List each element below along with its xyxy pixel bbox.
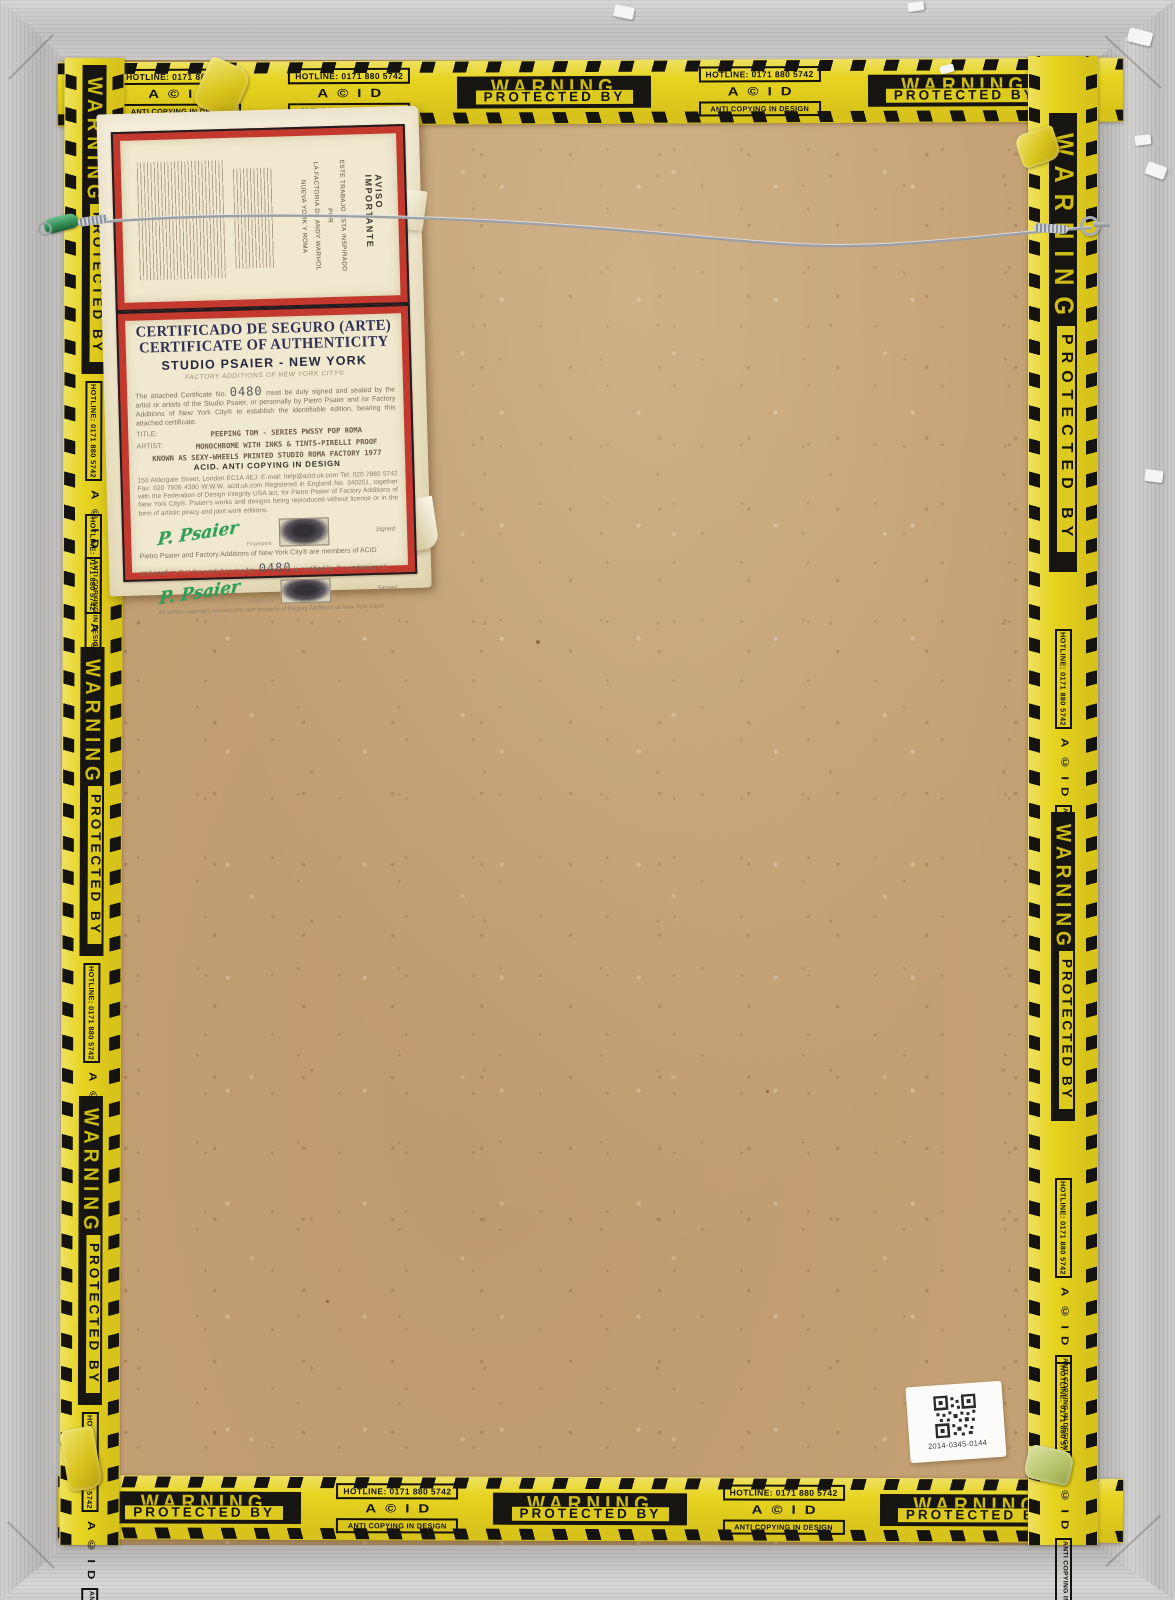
- fingerprint-stamp: P. Psaier: [281, 578, 332, 603]
- tape-anti-copying-label: ANTI COPYING IN DESIGN: [723, 1519, 845, 1534]
- tape-hotline-label: HOTLINE: 0171 880 5742: [699, 66, 821, 83]
- warning-banner: WARNING PROTECTED BY: [457, 75, 651, 109]
- fingerprint-stamp: P. Psaier: [279, 517, 330, 546]
- acid-logo: A©ID: [336, 1503, 458, 1515]
- security-tape-bottom: WARNING PROTECTED BY HOTLINE: 0171 880 5…: [58, 1475, 1123, 1543]
- panel-paper: AVISO IMPORTANTE ESTE TRABAJO ESTA INSPI…: [120, 133, 400, 303]
- tape-hotline-label: HOTLINE: 0171 880 5742: [336, 1483, 458, 1499]
- photo-back-of-framed-artwork: HOTLINE: 0171 880 5742 A©ID ANTI COPYING…: [0, 0, 1175, 1600]
- paint-chip: [1135, 134, 1152, 146]
- signed-label: Signed: [377, 584, 396, 592]
- tape-anti-copying-label: ANTI COPYING IN DESIGN: [699, 101, 821, 117]
- security-tape-right: WARNING PROTECTED BY HOTLINE: 0171 880 5…: [1028, 56, 1098, 1545]
- warning-banner: WARNING PROTECTED BY: [1051, 812, 1074, 1121]
- intro-text: The attached Certificate No.: [135, 391, 226, 401]
- warning-label: WARNING: [1054, 824, 1073, 951]
- warning-banner: WARNING PROTECTED BY: [80, 647, 104, 956]
- acid-logo: A©ID: [86, 483, 100, 555]
- protected-by-label: PROTECTED BY: [1059, 951, 1074, 1109]
- tape-hotline-label: HOTLINE: 0171 880 5742: [85, 381, 102, 481]
- warning-label: WARNING: [83, 659, 102, 786]
- protected-by-label: PROTECTED BY: [886, 88, 1044, 104]
- tape-hotline-label: HOTLINE: 0171 880 5742: [288, 68, 410, 85]
- aviso-content: AVISO IMPORTANTE ESTE TRABAJO ESTA INSPI…: [120, 133, 400, 303]
- certificate-panel: CERTIFICADO DE SEGURO (ARTE) CERTIFICATE…: [116, 304, 417, 582]
- frame-top-rail: [0, 0, 1175, 60]
- signature-row: P. Psaier Fingerprint P. Psaier Signed: [139, 514, 400, 551]
- aviso-center-lines: ESTE TRABAJO ESTA INSPIRADO POR LA FACTO…: [299, 160, 348, 273]
- acid-tape-stamp: HOTLINE: 0171 880 5742 A©ID ANTI COPYING…: [1055, 629, 1072, 755]
- fingerprint-caption: Fingerprint: [248, 598, 273, 605]
- warning-banner: WARNING PROTECTED BY: [78, 1096, 102, 1405]
- certificate-number: 0480: [230, 384, 263, 399]
- frame-left-rail: [0, 0, 66, 1600]
- warning-banner: WARNING PROTECTED BY: [493, 1492, 687, 1526]
- psaier-signature: P. Psaier: [157, 518, 240, 552]
- tape-anti-copying-label: ANTI COPYING IN DESIGN: [80, 1588, 97, 1600]
- protected-by-label: PROTECTED BY: [512, 1506, 670, 1521]
- warning-label: WARNING: [81, 1108, 100, 1235]
- fine-print-columns: [233, 168, 276, 269]
- aviso-line: LA FACTORIA DE ANDY WARHOL: [312, 161, 322, 273]
- tape-hotline-label: HOTLINE: 0171 880 5742: [723, 1484, 845, 1500]
- frame-right-rail: [1095, 0, 1175, 1600]
- acid-tape-stamp: HOTLINE: 0171 880 5742 A©ID ANTI COPYING…: [336, 1483, 458, 1533]
- acid-logo: A©ID: [82, 1514, 96, 1586]
- fingerprint-caption: Fingerprint: [247, 541, 272, 548]
- fingerprint-name: P. Psaier: [295, 594, 316, 601]
- tape-hotline-label: HOTLINE: 0171 880 5742: [1055, 629, 1072, 729]
- aviso-line: ESTE TRABAJO ESTA INSPIRADO: [338, 160, 348, 272]
- acid-logo: A©ID: [288, 87, 410, 100]
- frame-bottom-rail: [0, 1545, 1175, 1600]
- protected-by-label: PROTECTED BY: [86, 1235, 101, 1393]
- acid-tape-stamp: HOTLINE: 0171 880 5742 A©ID ANTI COPYING…: [699, 66, 821, 117]
- aviso-line: POR: [325, 160, 335, 272]
- signed-label: Signed: [376, 525, 395, 533]
- title-label: TITLE:: [136, 431, 170, 441]
- inventory-number: 2014-0345-0144: [928, 1438, 988, 1451]
- confirm-text: and confirm that the work bearing No.: [140, 567, 257, 577]
- acid-logo: A©ID: [1056, 731, 1070, 803]
- certificate-body: CERTIFICADO DE SEGURO (ARTE) CERTIFICATE…: [133, 317, 400, 568]
- acid-tape-stamp: HOTLINE: 0171 880 5742 A©ID ANTI COPYING…: [82, 963, 99, 1089]
- acid-tape-stamp: HOTLINE: 0171 880 5742 A©ID ANTI COPYING…: [1055, 1178, 1072, 1304]
- warning-banner: WARNING PROTECTED BY: [107, 1491, 301, 1525]
- acid-logo: A©ID: [723, 1504, 845, 1516]
- acid-tape-stamp: HOTLINE: 0171 880 5742 A©ID ANTI COPYING…: [85, 381, 102, 507]
- aviso-heading: AVISO IMPORTANTE: [363, 174, 385, 256]
- address-paragraph: 150 Aldergate Street, London EC1A 4EJ. E…: [137, 470, 398, 518]
- artist-label: ARTIST:: [137, 442, 171, 452]
- board-blemish: [536, 640, 540, 644]
- acid-logo: A©ID: [1056, 1280, 1070, 1352]
- confirm-text: is certified by the undersigned.: [294, 563, 389, 573]
- psaier-signature: P. Psaier: [158, 576, 241, 610]
- paint-chip: [1144, 469, 1163, 483]
- inventory-sticker: 2014-0345-0144: [905, 1381, 1006, 1464]
- protected-by-label: PROTECTED BY: [1057, 326, 1075, 551]
- acid-logo: A©ID: [699, 85, 821, 98]
- aviso-line: NUEVA YORK Y ROMA: [299, 161, 309, 273]
- tape-hotline-label: HOTLINE: 0171 880 5742: [1055, 1178, 1072, 1278]
- tape-anti-copying-label: ANTI COPYING IN DESIGN: [1055, 1538, 1072, 1600]
- protected-by-label: PROTECTED BY: [125, 1505, 283, 1520]
- protected-by-label: PROTECTED BY: [87, 786, 102, 944]
- board-blemish: [326, 1300, 329, 1303]
- certificate-intro: The attached Certificate No. 0480 must b…: [135, 381, 396, 429]
- aviso-panel: AVISO IMPORTANTE ESTE TRABAJO ESTA INSPI…: [111, 124, 410, 312]
- certificate-number: 0480: [259, 560, 292, 575]
- warning-banner: WARNING PROTECTED BY: [1049, 113, 1077, 571]
- fingerprint-name: P. Psaier: [294, 538, 315, 545]
- board-blemish: [766, 1090, 769, 1093]
- tape-anti-copying-label: ANTI COPYING IN DESIGN: [336, 1518, 458, 1533]
- tape-hotline-label: HOTLINE: 0171 880 5742: [83, 963, 100, 1063]
- protected-by-label: PROTECTED BY: [476, 89, 634, 105]
- fine-print-columns: [137, 160, 226, 280]
- tape-hotline-label: HOTLINE: 0171 880 5742: [1055, 1362, 1072, 1462]
- certificate-of-authenticity: AVISO IMPORTANTE ESTE TRABAJO ESTA INSPI…: [96, 106, 431, 597]
- qr-code: [933, 1394, 978, 1439]
- panel-paper: CERTIFICADO DE SEGURO (ARTE) CERTIFICATE…: [125, 313, 408, 573]
- eyelet-screw: [1094, 222, 1110, 227]
- acid-tape-stamp: HOTLINE: 0171 880 5742 A©ID ANTI COPYING…: [723, 1484, 845, 1534]
